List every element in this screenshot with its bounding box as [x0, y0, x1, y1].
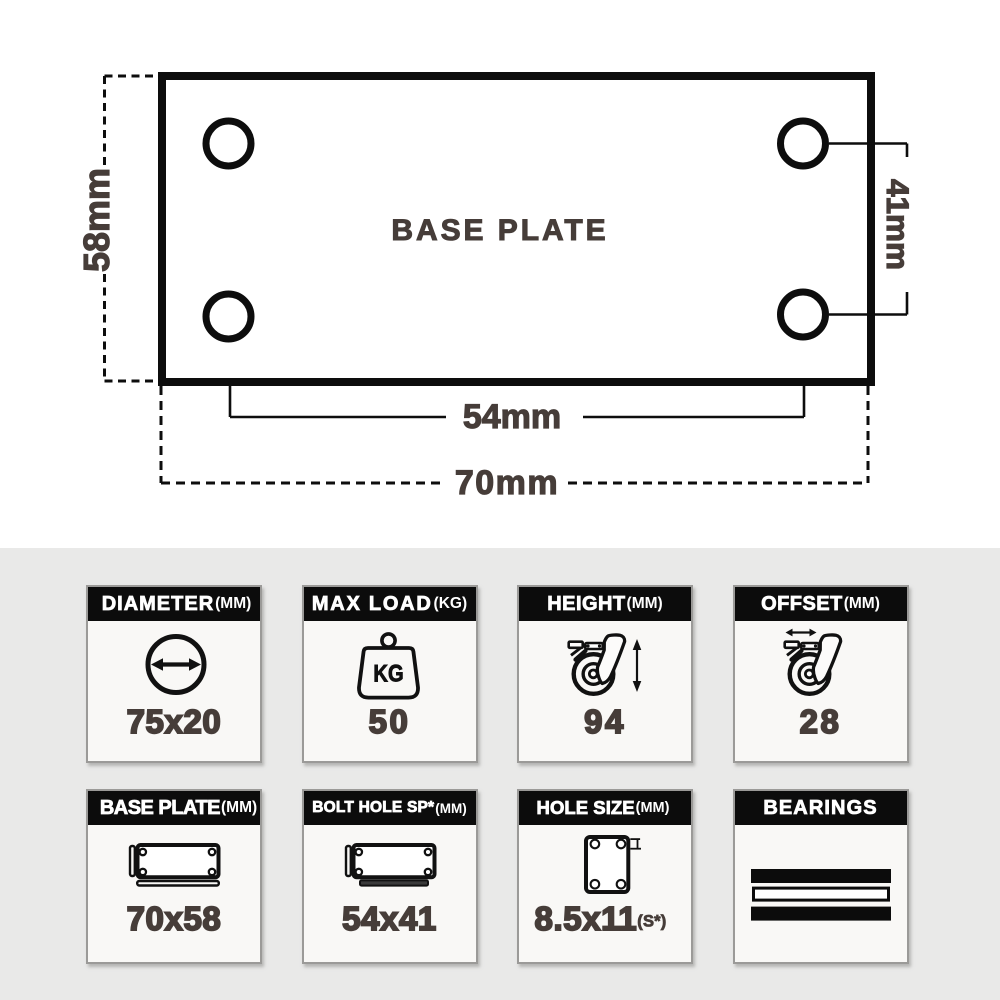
svg-text:58mm: 58mm [76, 168, 117, 272]
svg-text:KG: KG [373, 660, 403, 687]
svg-text:54mm: 54mm [463, 398, 561, 436]
svg-text:41mm: 41mm [880, 179, 916, 270]
svg-text:BASE PLATE: BASE PLATE [391, 214, 608, 247]
svg-text:70mm: 70mm [455, 464, 559, 502]
